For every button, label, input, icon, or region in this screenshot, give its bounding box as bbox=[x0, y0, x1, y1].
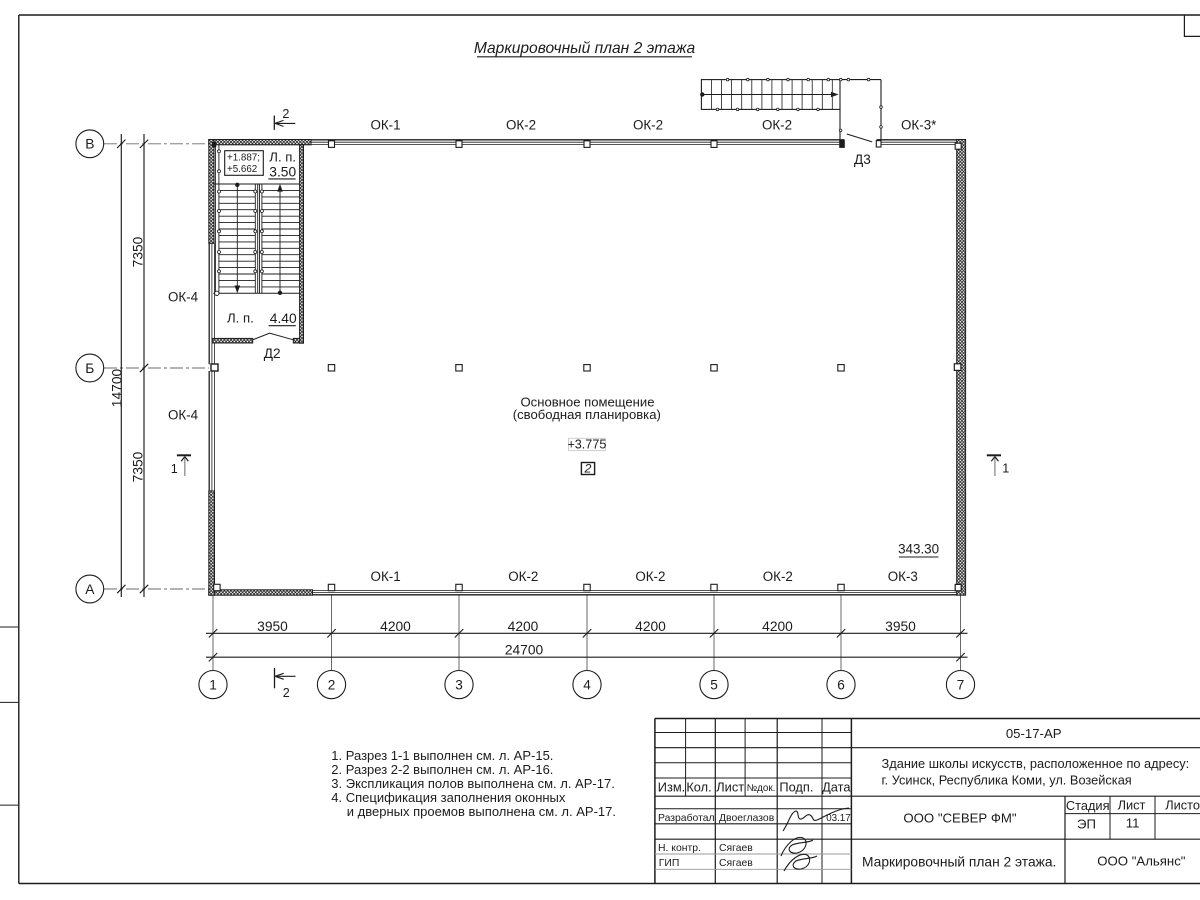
svg-text:(свободная планировка): (свободная планировка) bbox=[513, 407, 661, 422]
svg-text:1: 1 bbox=[209, 678, 217, 693]
svg-text:2: 2 bbox=[584, 461, 592, 475]
svg-text:4. Спецификация заполнения око: 4. Спецификация заполнения оконных bbox=[331, 790, 566, 805]
svg-text:7350: 7350 bbox=[130, 451, 145, 482]
svg-text:Здание школы искусств, располо: Здание школы искусств, расположенное по … bbox=[882, 756, 1190, 771]
svg-text:Л. п.: Л. п. bbox=[269, 149, 296, 164]
svg-text:3.50: 3.50 bbox=[269, 164, 296, 179]
svg-text:ОК-2: ОК-2 bbox=[506, 118, 536, 133]
svg-text:2. Разрез 2-2 выполнен см. л.: 2. Разрез 2-2 выполнен см. л. АР-16. bbox=[331, 762, 553, 777]
svg-text:Дата: Дата bbox=[822, 779, 851, 794]
svg-text:ОК-3: ОК-3 bbox=[888, 569, 918, 584]
svg-text:1: 1 bbox=[1002, 462, 1009, 476]
svg-text:+3.775: +3.775 bbox=[567, 437, 606, 451]
svg-text:7: 7 bbox=[957, 678, 965, 693]
svg-text:ОК-2: ОК-2 bbox=[763, 569, 793, 584]
svg-text:4.40: 4.40 bbox=[270, 311, 297, 326]
svg-text:3: 3 bbox=[455, 678, 463, 693]
svg-text:11: 11 bbox=[1126, 816, 1140, 831]
svg-text:ОК-1: ОК-1 bbox=[370, 118, 400, 133]
svg-text:3950: 3950 bbox=[257, 619, 288, 634]
svg-text:Лист: Лист bbox=[1118, 798, 1146, 813]
svg-text:Д3: Д3 bbox=[854, 152, 871, 167]
svg-text:2: 2 bbox=[283, 686, 290, 700]
svg-text:ЭП: ЭП bbox=[1077, 816, 1096, 831]
svg-text:2: 2 bbox=[282, 107, 289, 121]
svg-text:1. Разрез 1-1 выполнен см. л.: 1. Разрез 1-1 выполнен см. л. АР-15. bbox=[331, 748, 553, 763]
svg-text:4200: 4200 bbox=[508, 619, 539, 634]
svg-text:Сягаев: Сягаев bbox=[719, 843, 753, 854]
svg-text:05-17-АР: 05-17-АР bbox=[1006, 726, 1062, 741]
svg-text:Лист: Лист bbox=[716, 779, 744, 794]
svg-text:343.30: 343.30 bbox=[898, 542, 939, 557]
svg-text:ОК-2: ОК-2 bbox=[508, 569, 538, 584]
svg-text:А: А bbox=[85, 582, 95, 597]
svg-text:3. Экспликация полов выполнена: 3. Экспликация полов выполнена см. л. АР… bbox=[331, 776, 615, 791]
svg-text:5: 5 bbox=[710, 678, 718, 693]
svg-text:24700: 24700 bbox=[505, 643, 544, 658]
svg-text:В: В bbox=[85, 137, 94, 152]
svg-text:Маркировочный план 2 этажа: Маркировочный план 2 этажа bbox=[474, 40, 696, 57]
svg-text:+1.887;: +1.887; bbox=[227, 153, 260, 164]
svg-text:14700: 14700 bbox=[110, 368, 125, 407]
svg-text:ООО "СЕВЕР ФМ": ООО "СЕВЕР ФМ" bbox=[903, 811, 1017, 826]
svg-text:03.17: 03.17 bbox=[826, 813, 851, 824]
svg-text:ОК-2: ОК-2 bbox=[762, 118, 792, 133]
svg-text:6: 6 bbox=[837, 678, 845, 693]
svg-text:и дверных проемов выполнена см: и дверных проемов выполнена см. л. АР-17… bbox=[347, 804, 616, 819]
svg-text:4200: 4200 bbox=[380, 619, 411, 634]
svg-text:ОК-1: ОК-1 bbox=[371, 569, 401, 584]
svg-text:ООО "Альянс": ООО "Альянс" bbox=[1097, 853, 1185, 868]
svg-text:Листов: Листов bbox=[1165, 798, 1200, 813]
svg-text:Стадия: Стадия bbox=[1066, 798, 1110, 813]
svg-text:ОК-3*: ОК-3* bbox=[901, 118, 936, 133]
svg-text:Разработал: Разработал bbox=[658, 812, 715, 824]
svg-text:2: 2 bbox=[328, 678, 336, 693]
svg-text:ГИП: ГИП bbox=[659, 858, 680, 869]
svg-text:ОК-4: ОК-4 bbox=[168, 290, 199, 305]
svg-text:Кол.: Кол. bbox=[686, 779, 711, 794]
svg-text:№док.: №док. bbox=[747, 783, 776, 794]
svg-text:ОК-2: ОК-2 bbox=[635, 569, 665, 584]
svg-text:Л. п.: Л. п. bbox=[227, 310, 254, 325]
svg-text:3950: 3950 bbox=[885, 619, 916, 634]
svg-text:7350: 7350 bbox=[130, 236, 145, 267]
svg-text:4200: 4200 bbox=[635, 619, 666, 634]
svg-text:+5.662: +5.662 bbox=[227, 164, 257, 175]
svg-text:ОК-2: ОК-2 bbox=[633, 118, 663, 133]
svg-text:Н. контр.: Н. контр. bbox=[658, 843, 701, 854]
svg-text:Сягаев: Сягаев bbox=[719, 858, 753, 869]
svg-text:Маркировочный план 2 этажа.: Маркировочный план 2 этажа. bbox=[862, 855, 1056, 870]
svg-text:Изм.: Изм. bbox=[658, 779, 685, 794]
svg-text:Двоеглазов: Двоеглазов bbox=[719, 813, 775, 824]
svg-text:ОК-4: ОК-4 bbox=[168, 408, 199, 423]
svg-text:4: 4 bbox=[583, 678, 591, 693]
svg-text:г. Усинск, Республика Коми, ул: г. Усинск, Республика Коми, ул. Возейска… bbox=[882, 773, 1132, 788]
svg-text:4200: 4200 bbox=[762, 619, 793, 634]
svg-text:Д2: Д2 bbox=[264, 346, 281, 361]
svg-text:1: 1 bbox=[171, 462, 178, 476]
svg-text:Подп.: Подп. bbox=[779, 779, 813, 794]
svg-text:Б: Б bbox=[85, 361, 94, 376]
